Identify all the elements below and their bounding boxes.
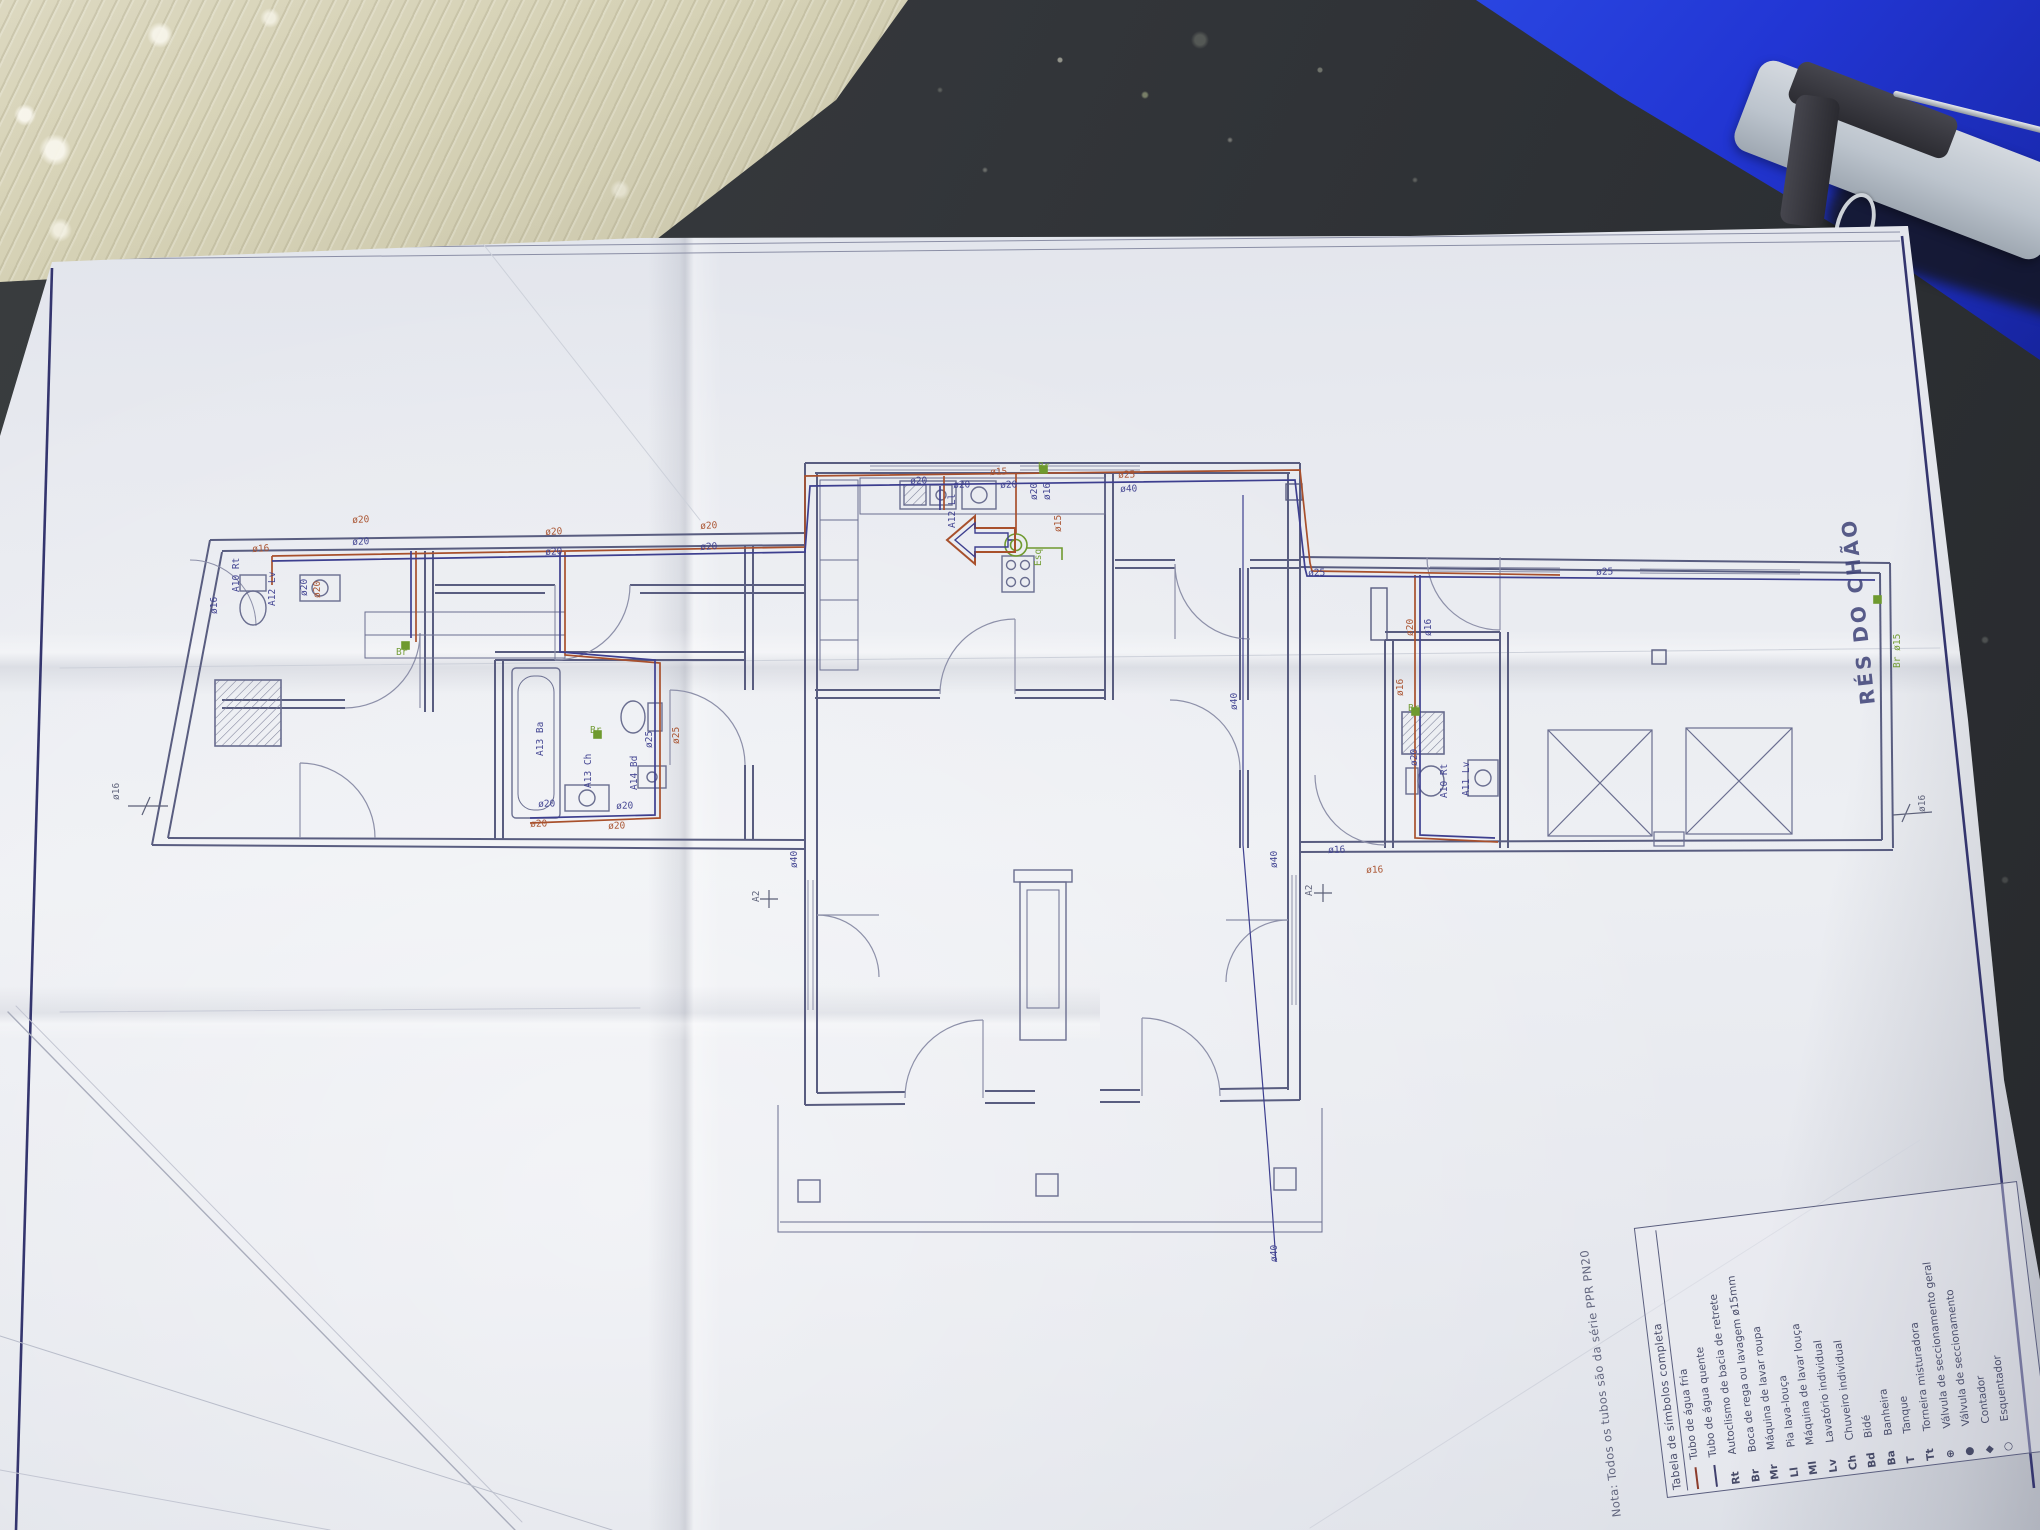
terrace [778, 1105, 1322, 1232]
dishwasher [962, 481, 996, 509]
legend-symbol [1708, 1456, 1724, 1487]
bidet [638, 766, 666, 788]
fireplace [1014, 870, 1072, 1040]
legend-symbol: Ml [1805, 1444, 1821, 1475]
legend-symbol: T [1902, 1432, 1918, 1463]
toilet-bath3 [1406, 766, 1444, 796]
dimension-markers [128, 797, 1932, 908]
legend-symbol: ○ [2000, 1420, 2016, 1451]
accents-green [402, 466, 1881, 738]
toilet-bath1 [240, 575, 266, 625]
shower-bath3 [1402, 712, 1444, 754]
legend-symbol: Mr [1766, 1449, 1782, 1480]
legend-symbol: Bd [1863, 1437, 1879, 1468]
basin-bath2 [565, 785, 609, 811]
legend-symbol: Rt [1727, 1454, 1743, 1485]
legend-symbol: ◆ [1980, 1423, 1996, 1454]
legend-line-sample [1694, 1467, 1699, 1489]
fixtures [128, 478, 1932, 1232]
right-wing-walls [1300, 557, 1893, 852]
photo-scene: ø20ø20ø16ø20ø20A10 Rtø16A12 LvBrø20ø20ø2… [0, 0, 2040, 1530]
legend-symbol: Ll [1786, 1447, 1802, 1478]
door-arcs [190, 557, 1500, 1098]
legend-symbol: Br [1747, 1451, 1763, 1482]
living-room-walls [805, 1088, 1300, 1105]
basin-bath3 [1468, 760, 1498, 796]
legend-symbol: Tt [1922, 1430, 1938, 1461]
legend-symbol: ⊕ [1941, 1428, 1957, 1459]
water-entry-arrow [947, 516, 1015, 564]
bathtub [512, 668, 560, 818]
legend-symbol: Ch [1844, 1440, 1860, 1471]
center-block-walls [805, 463, 1302, 1105]
legend-symbol: Lv [1824, 1442, 1840, 1473]
floorplan [128, 463, 1932, 1262]
legend-box: Tabela de símbolos completa Tubo de água… [1634, 1181, 2040, 1498]
shower-bath1 [215, 680, 281, 746]
legend-symbol [1688, 1459, 1704, 1490]
garage-doors [1548, 728, 1792, 846]
pipes-hot [272, 470, 1560, 842]
legend-symbol: Ba [1883, 1435, 1899, 1466]
basin-bath1 [300, 575, 340, 601]
legend-symbol: ● [1961, 1425, 1977, 1456]
stove [1002, 556, 1034, 592]
pipes-cold [272, 480, 1875, 1262]
legend-line-sample [1714, 1465, 1719, 1487]
